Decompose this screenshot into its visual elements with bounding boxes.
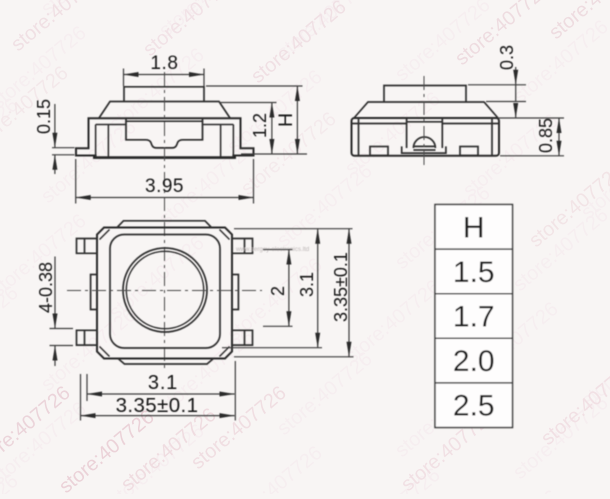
svg-text:1.7: 1.7 [453, 301, 495, 334]
svg-text:3.35±0.1: 3.35±0.1 [116, 394, 199, 417]
svg-text:1.8: 1.8 [150, 53, 178, 74]
svg-text:2.5: 2.5 [453, 390, 495, 423]
svg-text:H: H [275, 113, 297, 127]
svg-text:3.35±0.1: 3.35±0.1 [331, 252, 351, 322]
svg-text:H: H [463, 211, 485, 244]
svg-text:2.0: 2.0 [453, 345, 495, 378]
svg-text:0.85: 0.85 [536, 118, 556, 153]
svg-text:0.3: 0.3 [497, 45, 517, 70]
svg-text:4-0.38: 4-0.38 [36, 262, 56, 313]
svg-text:3.95: 3.95 [145, 176, 184, 197]
svg-text:0.15: 0.15 [34, 99, 54, 134]
svg-text:2: 2 [268, 286, 288, 296]
svg-text:1.5: 1.5 [453, 256, 495, 289]
svg-text:1.2: 1.2 [250, 113, 270, 138]
svg-text:3.1: 3.1 [297, 272, 317, 297]
svg-text:3.1: 3.1 [148, 372, 178, 394]
